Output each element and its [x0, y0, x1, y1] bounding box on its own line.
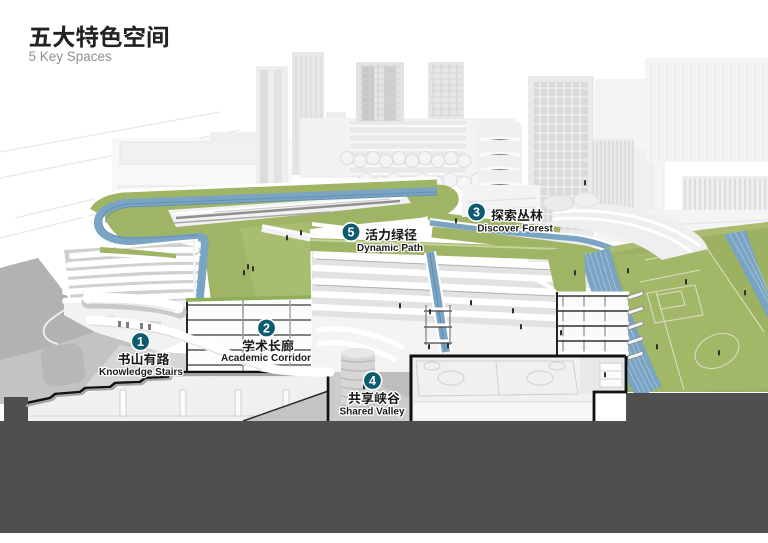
svg-text:2: 2 [263, 322, 270, 336]
svg-text:5 Key Spaces: 5 Key Spaces [29, 49, 113, 64]
svg-text:Knowledge Stairs: Knowledge Stairs [99, 367, 183, 378]
svg-text:4: 4 [369, 374, 376, 388]
svg-text:Shared Valley: Shared Valley [339, 407, 404, 418]
svg-text:Discover Forest: Discover Forest [477, 224, 553, 235]
svg-text:Academic Corridor: Academic Corridor [221, 353, 311, 364]
svg-text:Dynamic Path: Dynamic Path [357, 243, 423, 254]
svg-text:3: 3 [473, 206, 480, 220]
svg-text:5: 5 [348, 226, 355, 240]
svg-text:1: 1 [137, 335, 144, 349]
